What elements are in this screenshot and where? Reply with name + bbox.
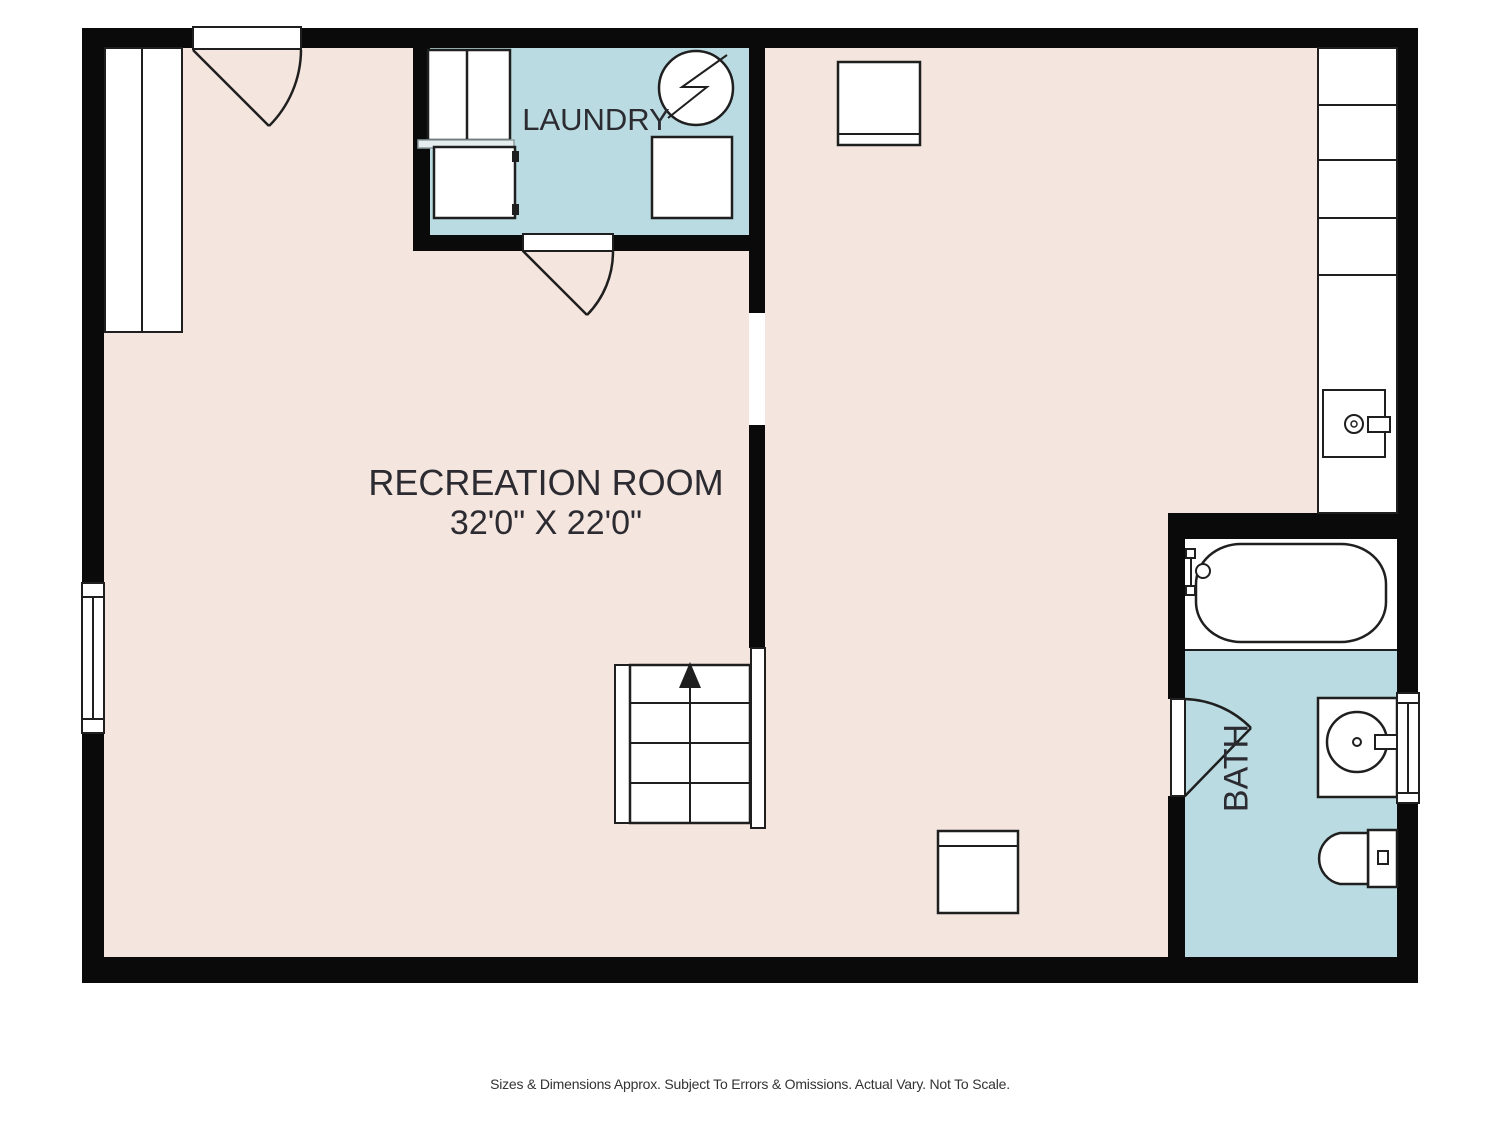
appliance-icon <box>938 831 1018 913</box>
bath-left-wall-lower <box>1168 796 1185 957</box>
bath-top-wall <box>1168 513 1418 539</box>
bathtub-icon <box>1186 544 1386 642</box>
washer-icon <box>434 147 519 218</box>
recreation-room-name: RECREATION ROOM <box>346 462 746 504</box>
disclaimer-text: Sizes & Dimensions Approx. Subject To Er… <box>0 1076 1500 1092</box>
tub-faucet-icon <box>1186 549 1195 558</box>
utility-faucet-icon <box>1368 417 1390 432</box>
furnace-icon <box>838 62 920 145</box>
recreation-room-label: RECREATION ROOM 32'0" X 22'0" <box>346 462 746 543</box>
flush-button-icon <box>1378 851 1388 864</box>
recreation-room-dimensions: 32'0" X 22'0" <box>346 504 746 543</box>
sink-faucet-icon <box>1375 735 1397 749</box>
laundry-room-label: LAUNDRY <box>496 102 696 138</box>
window-icon <box>1397 693 1419 803</box>
closet-shelving-icon <box>105 48 182 332</box>
bathroom-sink-icon <box>1318 698 1397 797</box>
staircase-icon <box>615 648 765 828</box>
dryer-icon <box>652 137 732 218</box>
central-wall-opening <box>749 313 765 425</box>
toilet-icon <box>1319 830 1397 887</box>
bath-room-label: BATH <box>1217 724 1256 812</box>
bath-left-wall-upper <box>1168 513 1185 699</box>
window-icon <box>82 583 104 733</box>
floorplan-canvas: LAUNDRY RECREATION ROOM 32'0" X 22'0" BA… <box>0 0 1500 1125</box>
utility-sink-icon <box>1323 390 1390 457</box>
floorplan-drawing <box>0 0 1500 1125</box>
